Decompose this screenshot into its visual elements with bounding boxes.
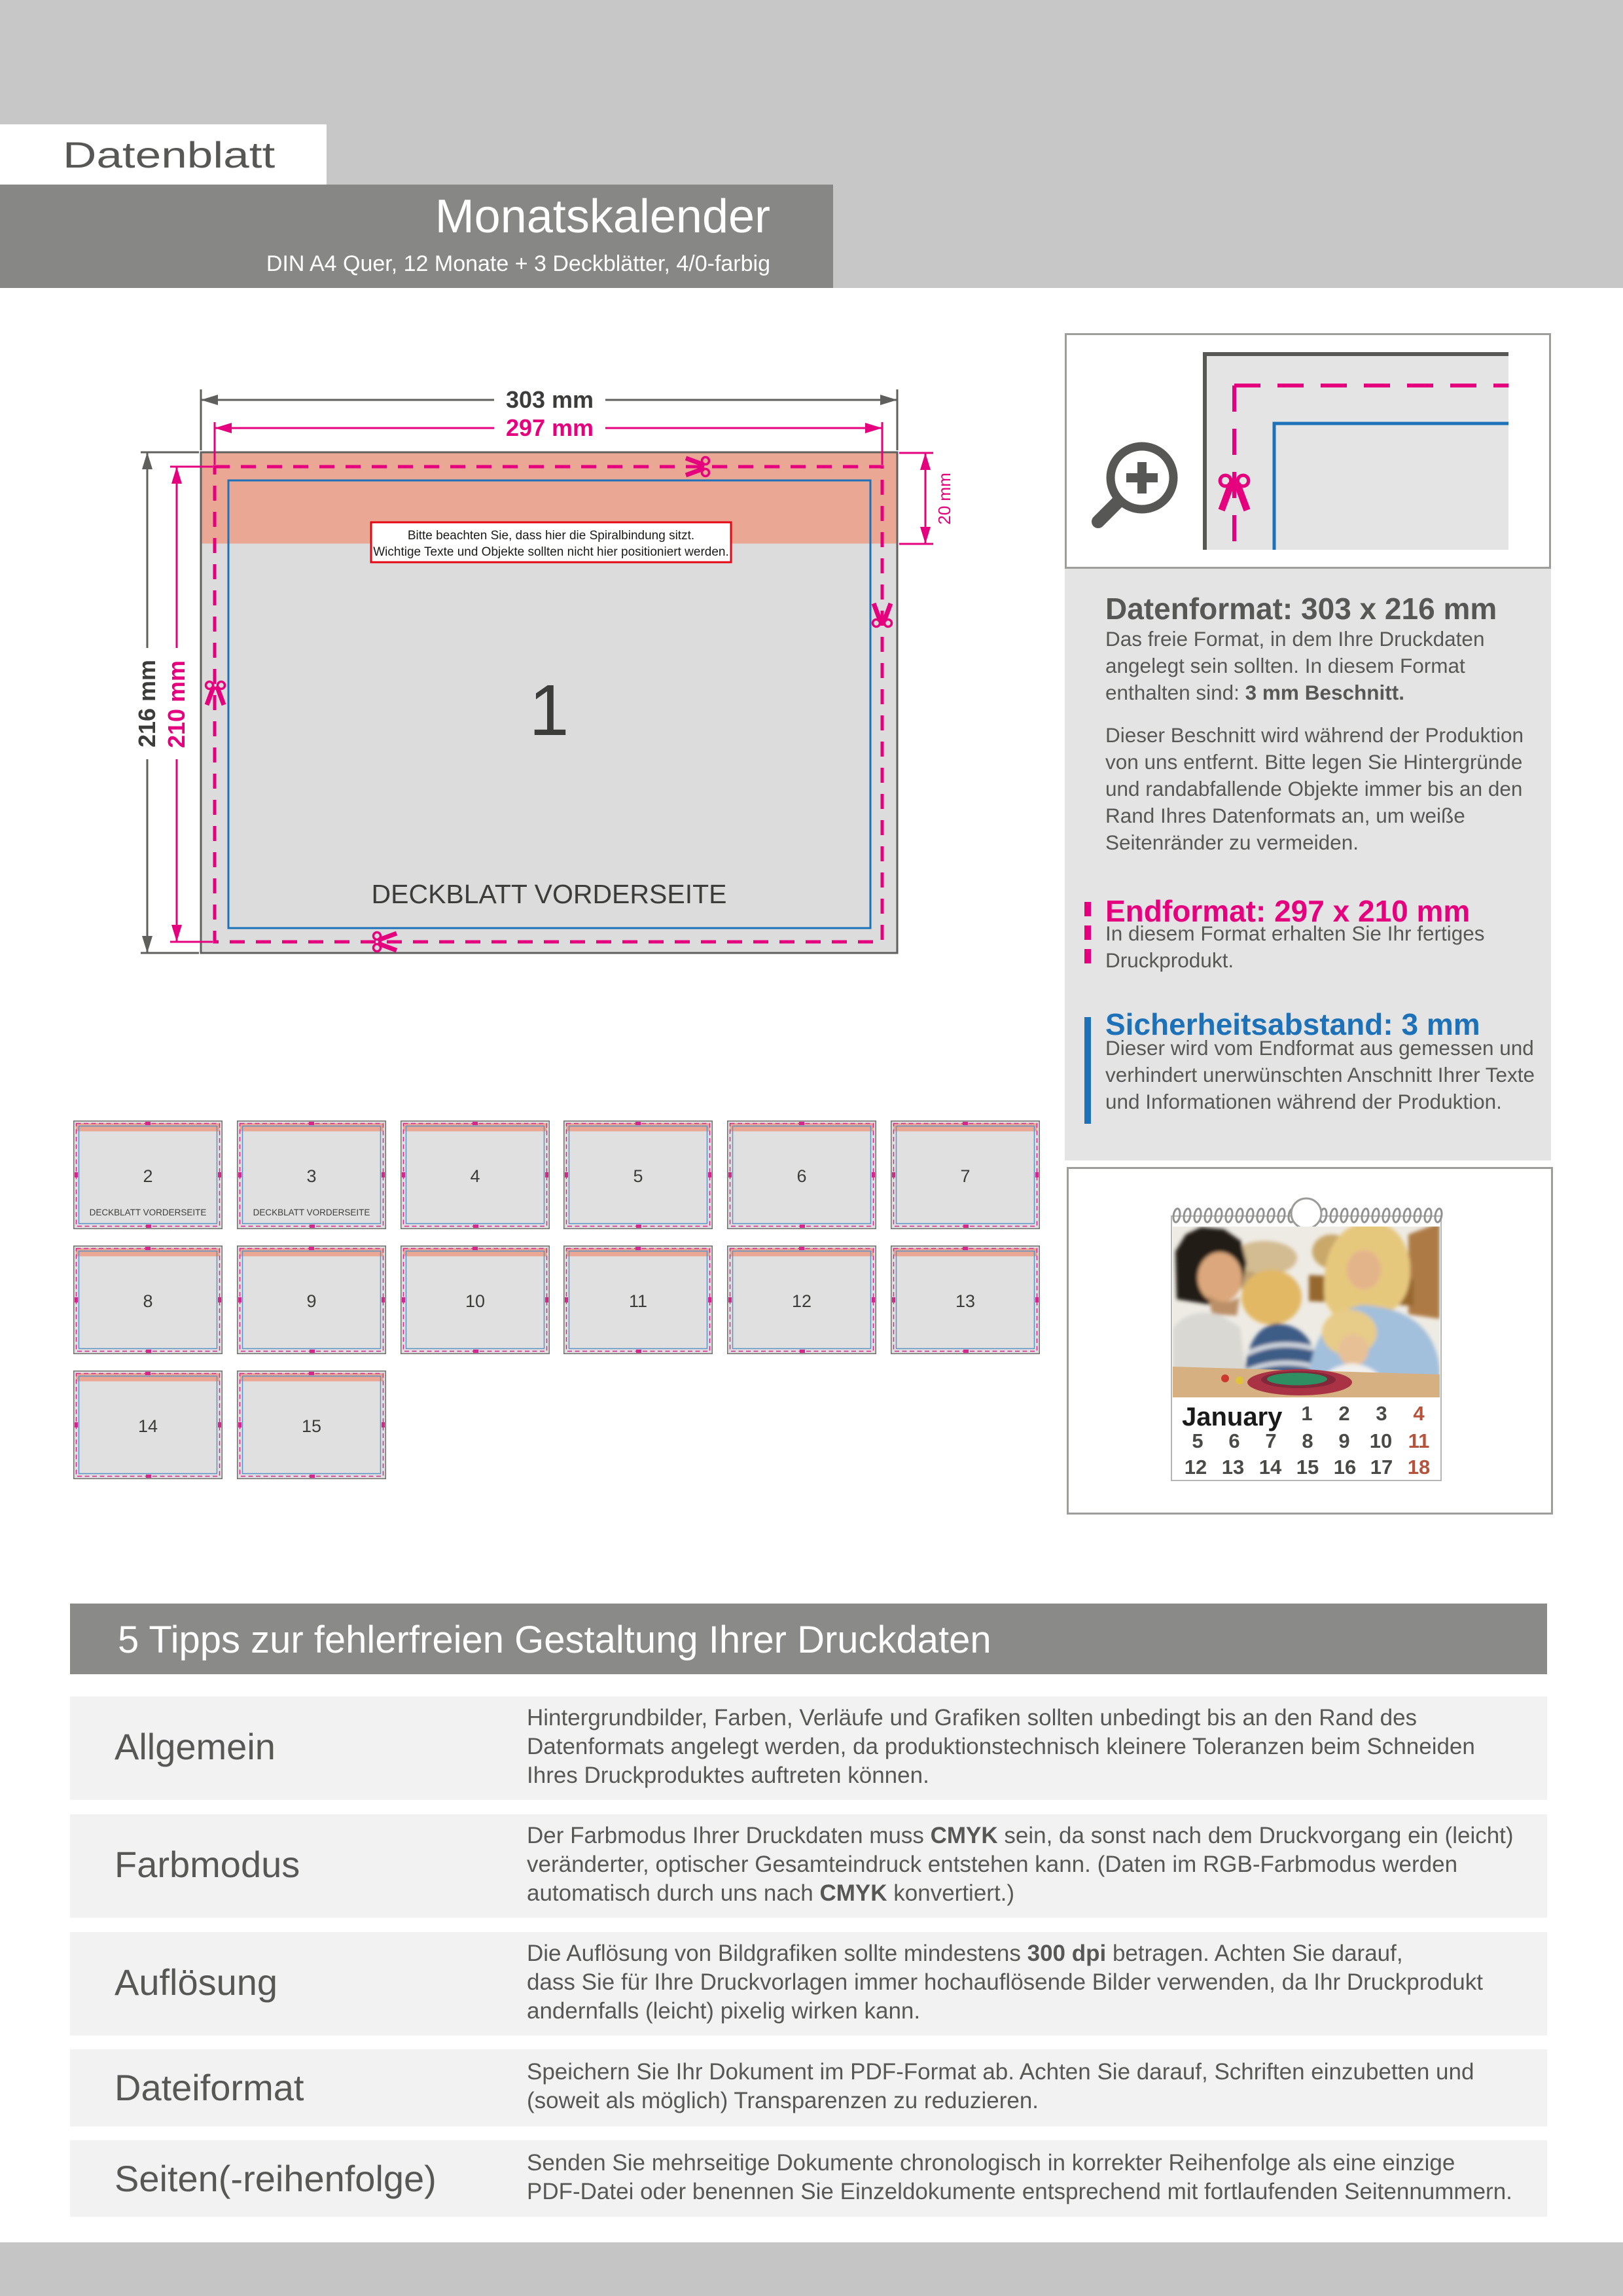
svg-text:303 mm: 303 mm (506, 386, 594, 413)
svg-text:4: 4 (1413, 1402, 1425, 1425)
svg-text:10: 10 (465, 1291, 485, 1311)
svg-text:5: 5 (1192, 1429, 1203, 1452)
svg-text:DECKBLATT VORDERSEITE: DECKBLATT VORDERSEITE (90, 1208, 207, 1217)
svg-text:6: 6 (1228, 1429, 1240, 1452)
svg-text:9: 9 (1338, 1429, 1349, 1452)
svg-text:14: 14 (138, 1416, 158, 1436)
svg-text:6: 6 (796, 1166, 806, 1186)
svg-text:1: 1 (1301, 1402, 1312, 1425)
svg-text:12: 12 (792, 1291, 811, 1311)
svg-text:Bitte beachten Sie, dass hier: Bitte beachten Sie, dass hier die Spiral… (408, 529, 694, 543)
svg-text:15: 15 (1296, 1456, 1319, 1479)
svg-text:216 mm: 216 mm (134, 660, 160, 747)
svg-text:7: 7 (1265, 1429, 1276, 1452)
svg-text:11: 11 (629, 1291, 647, 1311)
svg-text:11: 11 (1408, 1429, 1430, 1452)
svg-text:9: 9 (306, 1291, 316, 1311)
svg-text:8: 8 (143, 1291, 152, 1311)
svg-text:7: 7 (960, 1166, 970, 1186)
svg-text:Wichtige Texte und Objekte sol: Wichtige Texte und Objekte sollten nicht… (373, 545, 729, 559)
svg-text:2: 2 (1338, 1402, 1349, 1425)
svg-text:210 mm: 210 mm (163, 660, 190, 748)
svg-text:13: 13 (1222, 1456, 1244, 1479)
svg-text:3: 3 (1376, 1402, 1387, 1425)
svg-text:18: 18 (1408, 1456, 1430, 1479)
svg-text:16: 16 (1334, 1456, 1356, 1479)
svg-text:4: 4 (470, 1166, 480, 1186)
svg-text:January: January (1182, 1403, 1283, 1431)
svg-text:297 mm: 297 mm (506, 414, 594, 441)
svg-text:3: 3 (306, 1166, 316, 1186)
svg-text:17: 17 (1370, 1456, 1393, 1479)
svg-text:20 mm: 20 mm (935, 473, 954, 524)
svg-text:15: 15 (302, 1416, 321, 1436)
svg-text:12: 12 (1185, 1456, 1207, 1479)
svg-text:14: 14 (1259, 1456, 1282, 1479)
svg-text:DECKBLATT VORDERSEITE: DECKBLATT VORDERSEITE (372, 879, 727, 909)
svg-text:1: 1 (529, 670, 569, 751)
svg-text:DECKBLATT VORDERSEITE: DECKBLATT VORDERSEITE (253, 1208, 370, 1217)
svg-text:10: 10 (1370, 1429, 1392, 1452)
svg-text:13: 13 (955, 1291, 975, 1311)
svg-text:8: 8 (1302, 1429, 1313, 1452)
svg-text:2: 2 (143, 1166, 152, 1186)
svg-text:5: 5 (633, 1166, 643, 1186)
